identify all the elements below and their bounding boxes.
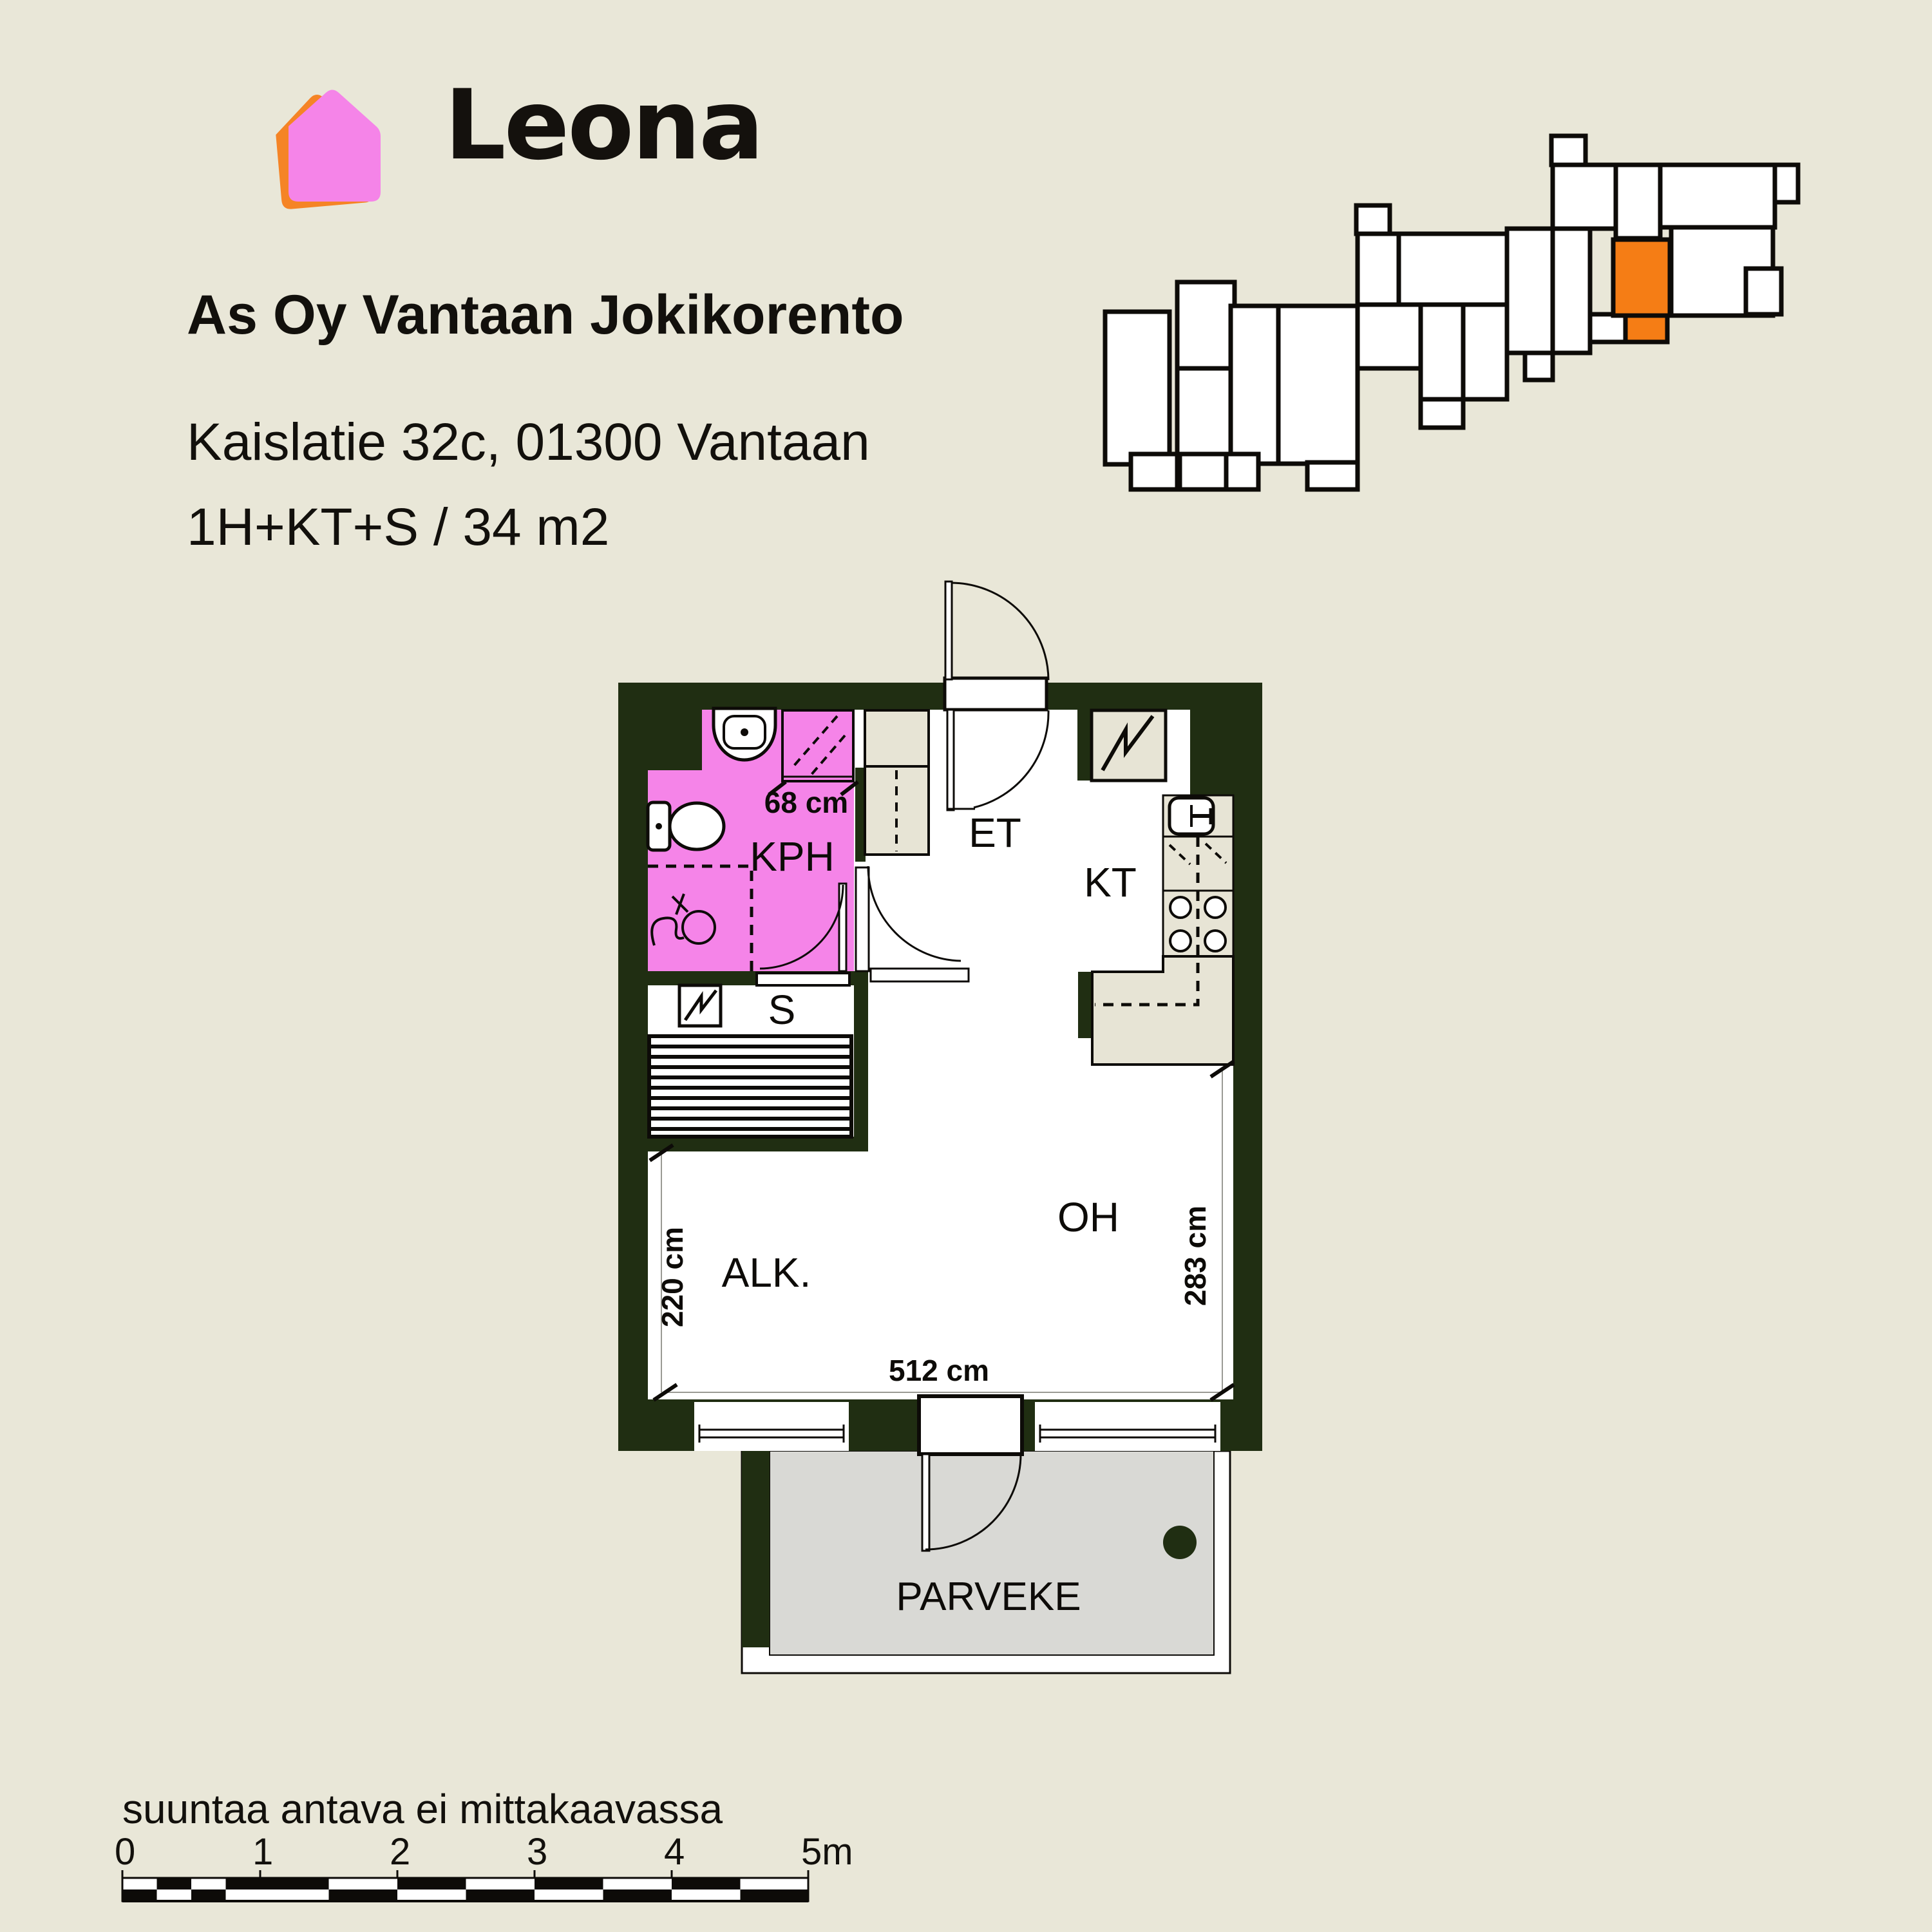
floor-plan: KPH S ET KT OH ALK. PARVEKE 68 cm 512 cm… xyxy=(580,560,1301,1694)
electrical-panel-icon xyxy=(1092,710,1166,781)
door-swing xyxy=(952,583,1048,680)
dim-width: 512 cm xyxy=(889,1354,989,1387)
site-plan-unit xyxy=(1177,282,1235,368)
site-plan-unit xyxy=(1231,306,1278,464)
dim-shower: 68 cm xyxy=(764,786,848,819)
site-plan-blocks xyxy=(1105,136,1798,489)
scale-label-2: 2 xyxy=(390,1830,410,1873)
disclaimer-text: suuntaa antava ei mittakaavassa xyxy=(122,1785,723,1833)
room-label-parveke: PARVEKE xyxy=(896,1575,1081,1619)
site-plan-unit xyxy=(1307,462,1358,489)
site-plan-unit xyxy=(1507,229,1553,353)
balcony-drain-icon xyxy=(1163,1526,1197,1559)
room-label-alk: ALK. xyxy=(722,1249,811,1296)
scale-label-1: 1 xyxy=(252,1830,273,1873)
room-label-s: S xyxy=(768,987,796,1033)
site-plan-unit xyxy=(1226,454,1258,489)
room-label-kph: KPH xyxy=(750,833,835,880)
dim-alcove: 220 cm xyxy=(656,1227,689,1327)
balcony xyxy=(742,1451,1230,1673)
window xyxy=(694,1402,849,1451)
site-plan-unit xyxy=(1105,312,1170,464)
site-plan-unit xyxy=(1553,229,1590,353)
site-plan-unit xyxy=(1660,165,1775,227)
scale-label-5m: 5m xyxy=(801,1830,853,1873)
site-plan-unit xyxy=(1463,305,1507,399)
shower-icon xyxy=(782,710,853,781)
sink-icon xyxy=(714,708,775,760)
page: { "brand": { "logo_text": "Leona", "logo… xyxy=(0,0,1932,1932)
site-plan-unit xyxy=(1399,234,1507,305)
site-plan-unit xyxy=(1358,305,1421,368)
site-plan-unit xyxy=(1180,454,1226,489)
scale-bar xyxy=(116,1868,824,1913)
site-plan-unit xyxy=(1746,269,1781,314)
site-plan-unit xyxy=(1553,165,1616,229)
room-label-kt: KT xyxy=(1084,859,1137,905)
site-plan-unit xyxy=(1525,353,1553,380)
site-plan-unit xyxy=(1421,399,1463,428)
room-label-et: ET xyxy=(969,810,1021,856)
dim-living: 283 cm xyxy=(1179,1206,1212,1306)
site-plan-unit xyxy=(1421,305,1463,399)
scale-label-0: 0 xyxy=(115,1830,135,1873)
site-plan-highlighted-unit xyxy=(1625,316,1667,342)
site-plan-unit xyxy=(1278,306,1358,464)
balcony-side-wall xyxy=(742,1451,770,1647)
room-label-oh: OH xyxy=(1057,1194,1119,1240)
sauna-bench-icon xyxy=(649,1036,851,1137)
kitchen-sink-icon xyxy=(1163,795,1233,837)
scale-label-3: 3 xyxy=(527,1830,547,1873)
site-plan-unit xyxy=(1551,136,1586,165)
site-plan xyxy=(1095,90,1880,489)
scale-label-4: 4 xyxy=(664,1830,685,1873)
house-icon xyxy=(272,90,381,210)
site-plan-highlighted-unit xyxy=(1613,240,1670,316)
site-plan-unit xyxy=(1131,454,1177,489)
site-plan-unit xyxy=(1616,165,1660,238)
closet xyxy=(865,710,929,855)
site-plan-unit xyxy=(1177,368,1231,464)
brand-name: Leona xyxy=(444,70,762,182)
address-line: Kaislatie 32c, 01300 Vantaan xyxy=(187,412,870,473)
site-plan-unit xyxy=(1356,205,1390,234)
toilet-icon xyxy=(648,802,724,850)
electrical-panel-icon xyxy=(679,985,721,1026)
window xyxy=(1035,1402,1220,1451)
site-plan-unit xyxy=(1590,314,1625,342)
site-plan-unit xyxy=(1358,234,1399,305)
page-title: As Oy Vantaan Jokikorento xyxy=(187,283,904,347)
apartment-info: 1H+KT+S / 34 m2 xyxy=(187,497,609,558)
site-plan-unit xyxy=(1775,165,1798,202)
